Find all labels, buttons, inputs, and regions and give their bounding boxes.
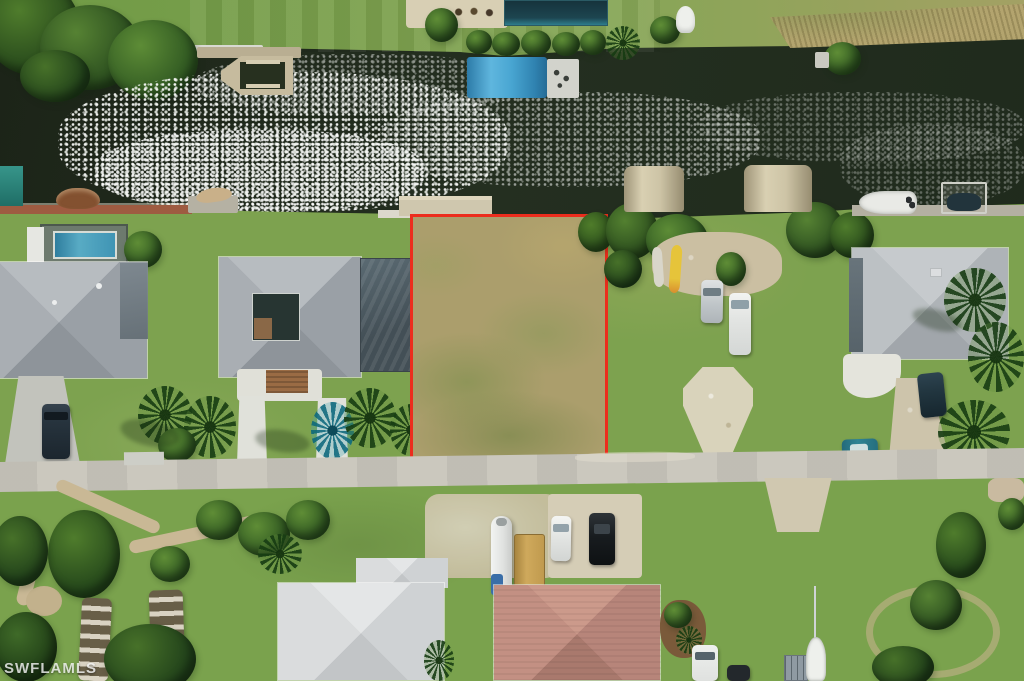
garden-tree <box>48 510 120 598</box>
driveway-apron <box>124 452 164 466</box>
house-bottom-pink-roof <box>493 584 661 681</box>
house-right-window-wall <box>849 258 863 352</box>
boat-lift-bar <box>246 84 280 88</box>
brown-boat <box>56 188 100 209</box>
concrete-dock-of-lot <box>399 196 492 216</box>
white-car-bottom <box>551 516 572 561</box>
dirt-patch <box>26 586 62 616</box>
house-1-lanai <box>120 263 148 339</box>
seawall <box>0 205 192 214</box>
canal-tree <box>604 250 642 288</box>
lifted-boat <box>947 193 981 211</box>
dark-suv-right-house <box>917 372 947 418</box>
garden-shrub <box>150 546 190 582</box>
bottom-right-tree <box>872 646 934 681</box>
mangrove-bush <box>824 42 861 75</box>
hedge-bush <box>492 32 520 56</box>
garden-shrub <box>196 500 242 540</box>
water-glint-dense <box>95 130 425 212</box>
sailboat-mast <box>814 586 816 640</box>
wood-deck <box>266 370 308 393</box>
white-van-bottom-edge <box>692 645 718 681</box>
hedge-bush <box>466 30 492 54</box>
tan-awning <box>514 534 545 587</box>
shoulder-bush <box>998 498 1024 530</box>
palm-tree <box>344 388 396 448</box>
tan-boat-canopy-1 <box>624 166 684 212</box>
playground-marks <box>452 5 496 19</box>
pool-shed-roof <box>27 227 44 263</box>
outboard-motors <box>906 196 915 209</box>
tank-cap <box>496 518 507 526</box>
hedge-bush <box>552 32 580 56</box>
bottom-right-tree <box>936 512 986 578</box>
aerial-photo: SWFLAMLS <box>0 0 1024 681</box>
bottom-right-tree <box>910 580 962 630</box>
silver-car <box>701 280 724 323</box>
roof-vent <box>96 283 102 289</box>
palm-tree <box>968 322 1024 392</box>
tan-boat-canopy-2 <box>744 165 812 212</box>
white-van-windshield <box>731 300 749 309</box>
watermark-text: SWFLAMLS <box>4 660 97 677</box>
white-car-windshield <box>553 524 569 532</box>
far-bank-bush <box>425 8 458 42</box>
boat-lift-bar <box>246 60 280 64</box>
red-outlined-vacant-lot <box>410 214 608 463</box>
garden-shrub <box>286 500 330 540</box>
hedge-bush <box>580 30 606 55</box>
white-boat-on-bank <box>676 6 695 33</box>
yard-palm <box>424 640 454 681</box>
sailboat-hull <box>806 637 826 681</box>
dark-car-bottom-edge <box>727 665 750 681</box>
teal-boathouse <box>0 166 23 206</box>
swimming-pool <box>53 231 117 259</box>
house-bottom-white-roof <box>277 582 445 681</box>
silver-car-windshield <box>703 288 721 296</box>
black-suv-bottom <box>589 513 615 565</box>
white-van-windshield <box>695 652 715 660</box>
hedge-bush <box>521 30 551 56</box>
far-bank-palm <box>606 26 640 60</box>
screened-pool-enclosure-far <box>504 0 608 26</box>
roof-vent <box>52 300 57 305</box>
blue-boathouse-roof <box>467 57 547 98</box>
bed-shrub <box>664 602 692 628</box>
white-dock-platform <box>547 59 579 98</box>
black-suv-sunroof <box>594 524 610 534</box>
solar-panel <box>784 655 808 681</box>
roof-vent <box>930 268 942 277</box>
van-windshield <box>44 412 68 420</box>
small-dock-right <box>815 52 829 68</box>
courtyard-deck <box>254 318 272 339</box>
canal-tree <box>20 50 90 102</box>
garden-palm <box>258 534 302 574</box>
